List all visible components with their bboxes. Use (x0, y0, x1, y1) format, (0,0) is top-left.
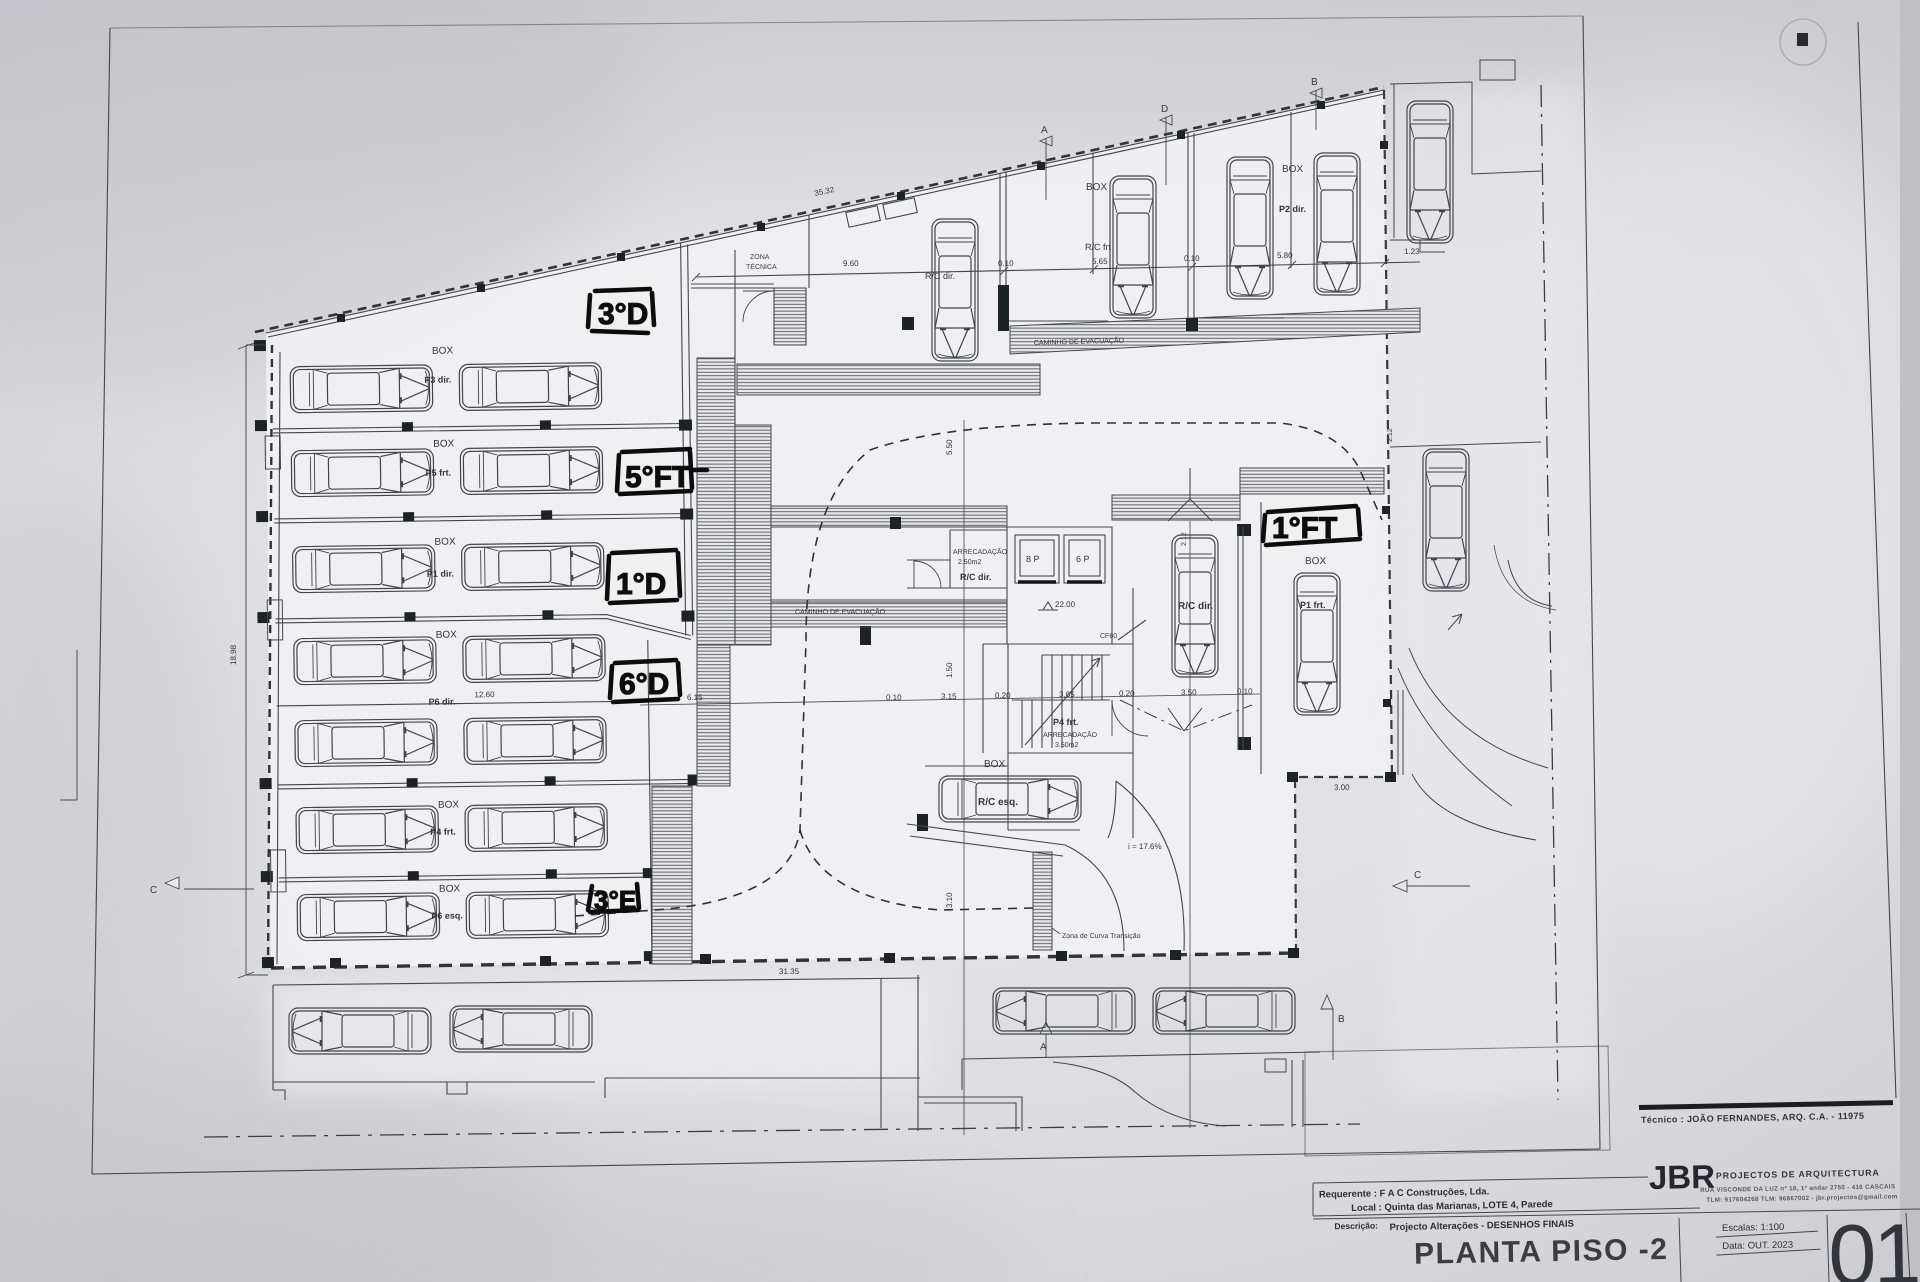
svg-text:BOX: BOX (433, 439, 455, 450)
svg-text:2.50m2: 2.50m2 (958, 559, 981, 566)
svg-text:3.65: 3.65 (1059, 690, 1075, 699)
svg-text:ARRECADAÇÃO: ARRECADAÇÃO (1043, 730, 1098, 739)
svg-text:2.12: 2.12 (1181, 532, 1188, 546)
svg-text:BOX: BOX (436, 630, 458, 641)
svg-text:R/C esq.: R/C esq. (978, 797, 1018, 808)
svg-text:BOX: BOX (1086, 182, 1107, 193)
svg-text:3°E: 3°E (594, 885, 636, 915)
svg-text:1.50: 1.50 (945, 662, 954, 678)
svg-text:5°FT: 5°FT (625, 461, 690, 494)
svg-text:PLANTA PISO -2: PLANTA PISO -2 (1414, 1233, 1669, 1271)
svg-text:0.10: 0.10 (886, 693, 902, 702)
svg-text:6.15: 6.15 (687, 693, 703, 702)
svg-text:1.23: 1.23 (1404, 247, 1420, 256)
svg-text:Zona de Curva Transição: Zona de Curva Transição (1062, 932, 1141, 940)
svg-text:3°D: 3°D (598, 298, 648, 331)
svg-text:P3 dir.: P3 dir. (424, 375, 451, 385)
svg-text:Descrição:: Descrição: (1334, 1220, 1378, 1231)
svg-text:P2 dir.: P2 dir. (1279, 204, 1306, 214)
svg-text:A: A (1041, 125, 1048, 136)
svg-text:22.00: 22.00 (1055, 600, 1076, 609)
svg-text:3.15: 3.15 (941, 692, 957, 701)
svg-text:5.65: 5.65 (1092, 257, 1108, 266)
svg-text:3.00: 3.00 (1334, 783, 1350, 792)
svg-text:CAMINHO DE EVACUAÇÃO: CAMINHO DE EVACUAÇÃO (795, 607, 886, 616)
svg-text:R/C dir.: R/C dir. (1178, 601, 1213, 612)
svg-text:P4 frt.: P4 frt. (430, 827, 456, 837)
svg-text:3.50m2: 3.50m2 (1055, 742, 1078, 749)
svg-text:0.10: 0.10 (1184, 254, 1200, 263)
svg-text:18.98: 18.98 (229, 644, 238, 665)
svg-text:A: A (1040, 1042, 1047, 1053)
svg-text:3.10: 3.10 (945, 892, 954, 908)
svg-text:BOX: BOX (984, 759, 1005, 770)
svg-text:01: 01 (1828, 1206, 1919, 1282)
svg-text:P5 frt.: P5 frt. (426, 468, 452, 478)
svg-text:P1 dir.: P1 dir. (427, 569, 454, 579)
svg-text:ZONA: ZONA (750, 254, 770, 261)
svg-text:P6 dir.: P6 dir. (429, 697, 456, 707)
svg-text:6 P: 6 P (1076, 554, 1090, 564)
svg-text:R/C frt: R/C frt (1085, 242, 1111, 252)
svg-text:3.50: 3.50 (1181, 688, 1197, 697)
svg-text:BOX: BOX (434, 537, 456, 548)
svg-text:P6 esq.: P6 esq. (431, 910, 463, 920)
svg-text:9.60: 9.60 (843, 259, 859, 268)
svg-text:0.10: 0.10 (998, 259, 1014, 268)
svg-text:R/C dir.: R/C dir. (960, 572, 992, 582)
svg-text:B: B (1311, 77, 1318, 88)
svg-text:Escalas: 1:100: Escalas: 1:100 (1722, 1222, 1785, 1234)
svg-text:1°FT: 1°FT (1272, 512, 1337, 545)
svg-text:C: C (150, 885, 157, 896)
svg-text:BOX: BOX (432, 346, 454, 357)
svg-text:BOX: BOX (439, 884, 461, 895)
svg-text:i = 17.6%: i = 17.6% (1128, 842, 1162, 851)
svg-text:BOX: BOX (1305, 556, 1326, 567)
svg-text:5.50: 5.50 (945, 439, 954, 455)
svg-text:6°D: 6°D (619, 668, 669, 701)
svg-text:0.20: 0.20 (995, 691, 1011, 700)
svg-text:0.20: 0.20 (1119, 689, 1135, 698)
svg-text:1°D: 1°D (616, 568, 666, 601)
svg-text:31.35: 31.35 (779, 967, 800, 976)
svg-text:Data: OUT. 2023: Data: OUT. 2023 (1722, 1240, 1793, 1252)
svg-text:TÉCNICA: TÉCNICA (746, 262, 777, 271)
svg-text:BOX: BOX (438, 800, 460, 811)
svg-text:2.12: 2.12 (1387, 428, 1394, 442)
svg-text:D: D (1161, 104, 1168, 115)
svg-text:BOX: BOX (1282, 164, 1303, 175)
svg-text:P4 frt.: P4 frt. (1053, 717, 1079, 727)
svg-text:CF60: CF60 (1100, 633, 1117, 640)
svg-text:0.10: 0.10 (1237, 687, 1253, 696)
svg-text:C: C (1414, 870, 1421, 881)
svg-text:ARRECADAÇÃO: ARRECADAÇÃO (953, 547, 1008, 556)
svg-text:R/C dir.: R/C dir. (925, 271, 955, 281)
svg-text:5.80: 5.80 (1277, 251, 1293, 260)
svg-text:8 P: 8 P (1026, 554, 1040, 564)
svg-text:P1 frt.: P1 frt. (1300, 600, 1326, 610)
svg-text:B: B (1338, 1014, 1345, 1025)
svg-text:12.60: 12.60 (474, 690, 495, 699)
